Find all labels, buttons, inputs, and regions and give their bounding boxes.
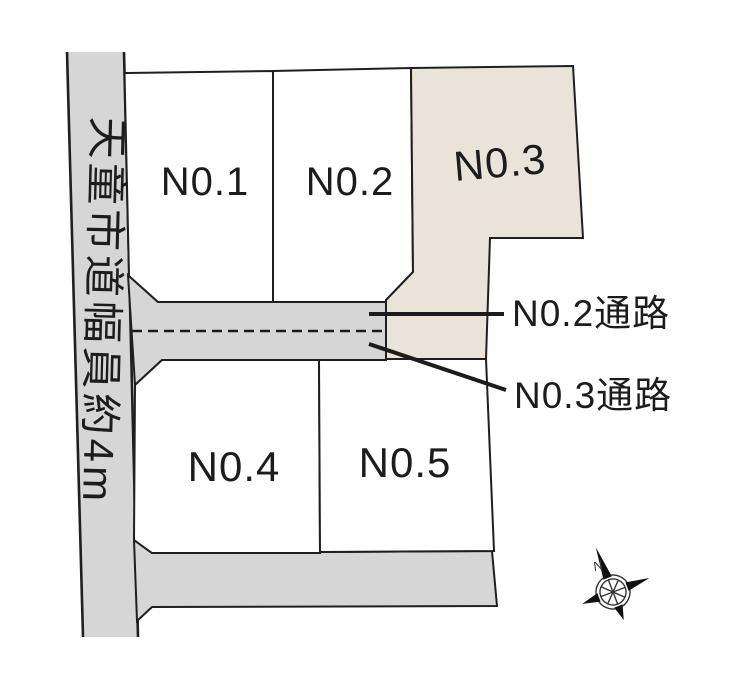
lot-no5-label: N0.5 (359, 439, 452, 486)
compass-south-arrow-icon (614, 604, 628, 621)
callout-no3-passage-label: N0.3通路 (514, 375, 672, 416)
lot-no1-label: N0.1 (161, 160, 250, 204)
callout-no2-passage-label: N0.2通路 (512, 293, 670, 334)
site-plan-map: N0.1 N0.2 N0.3 N0.4 N0.5 N0.2通路 N0.3通路 天… (0, 0, 753, 687)
lot-no4-label: N0.4 (188, 443, 281, 490)
compass-east-arrow-icon (625, 574, 651, 591)
compass-rose (565, 533, 660, 632)
compass-west-arrow-icon (581, 593, 601, 608)
lot-no2-label: N0.2 (306, 160, 395, 204)
lot-no3-label: N0.3 (452, 135, 548, 190)
site-plan-page: N0.1 N0.2 N0.3 N0.4 N0.5 N0.2通路 N0.3通路 天… (0, 0, 753, 687)
